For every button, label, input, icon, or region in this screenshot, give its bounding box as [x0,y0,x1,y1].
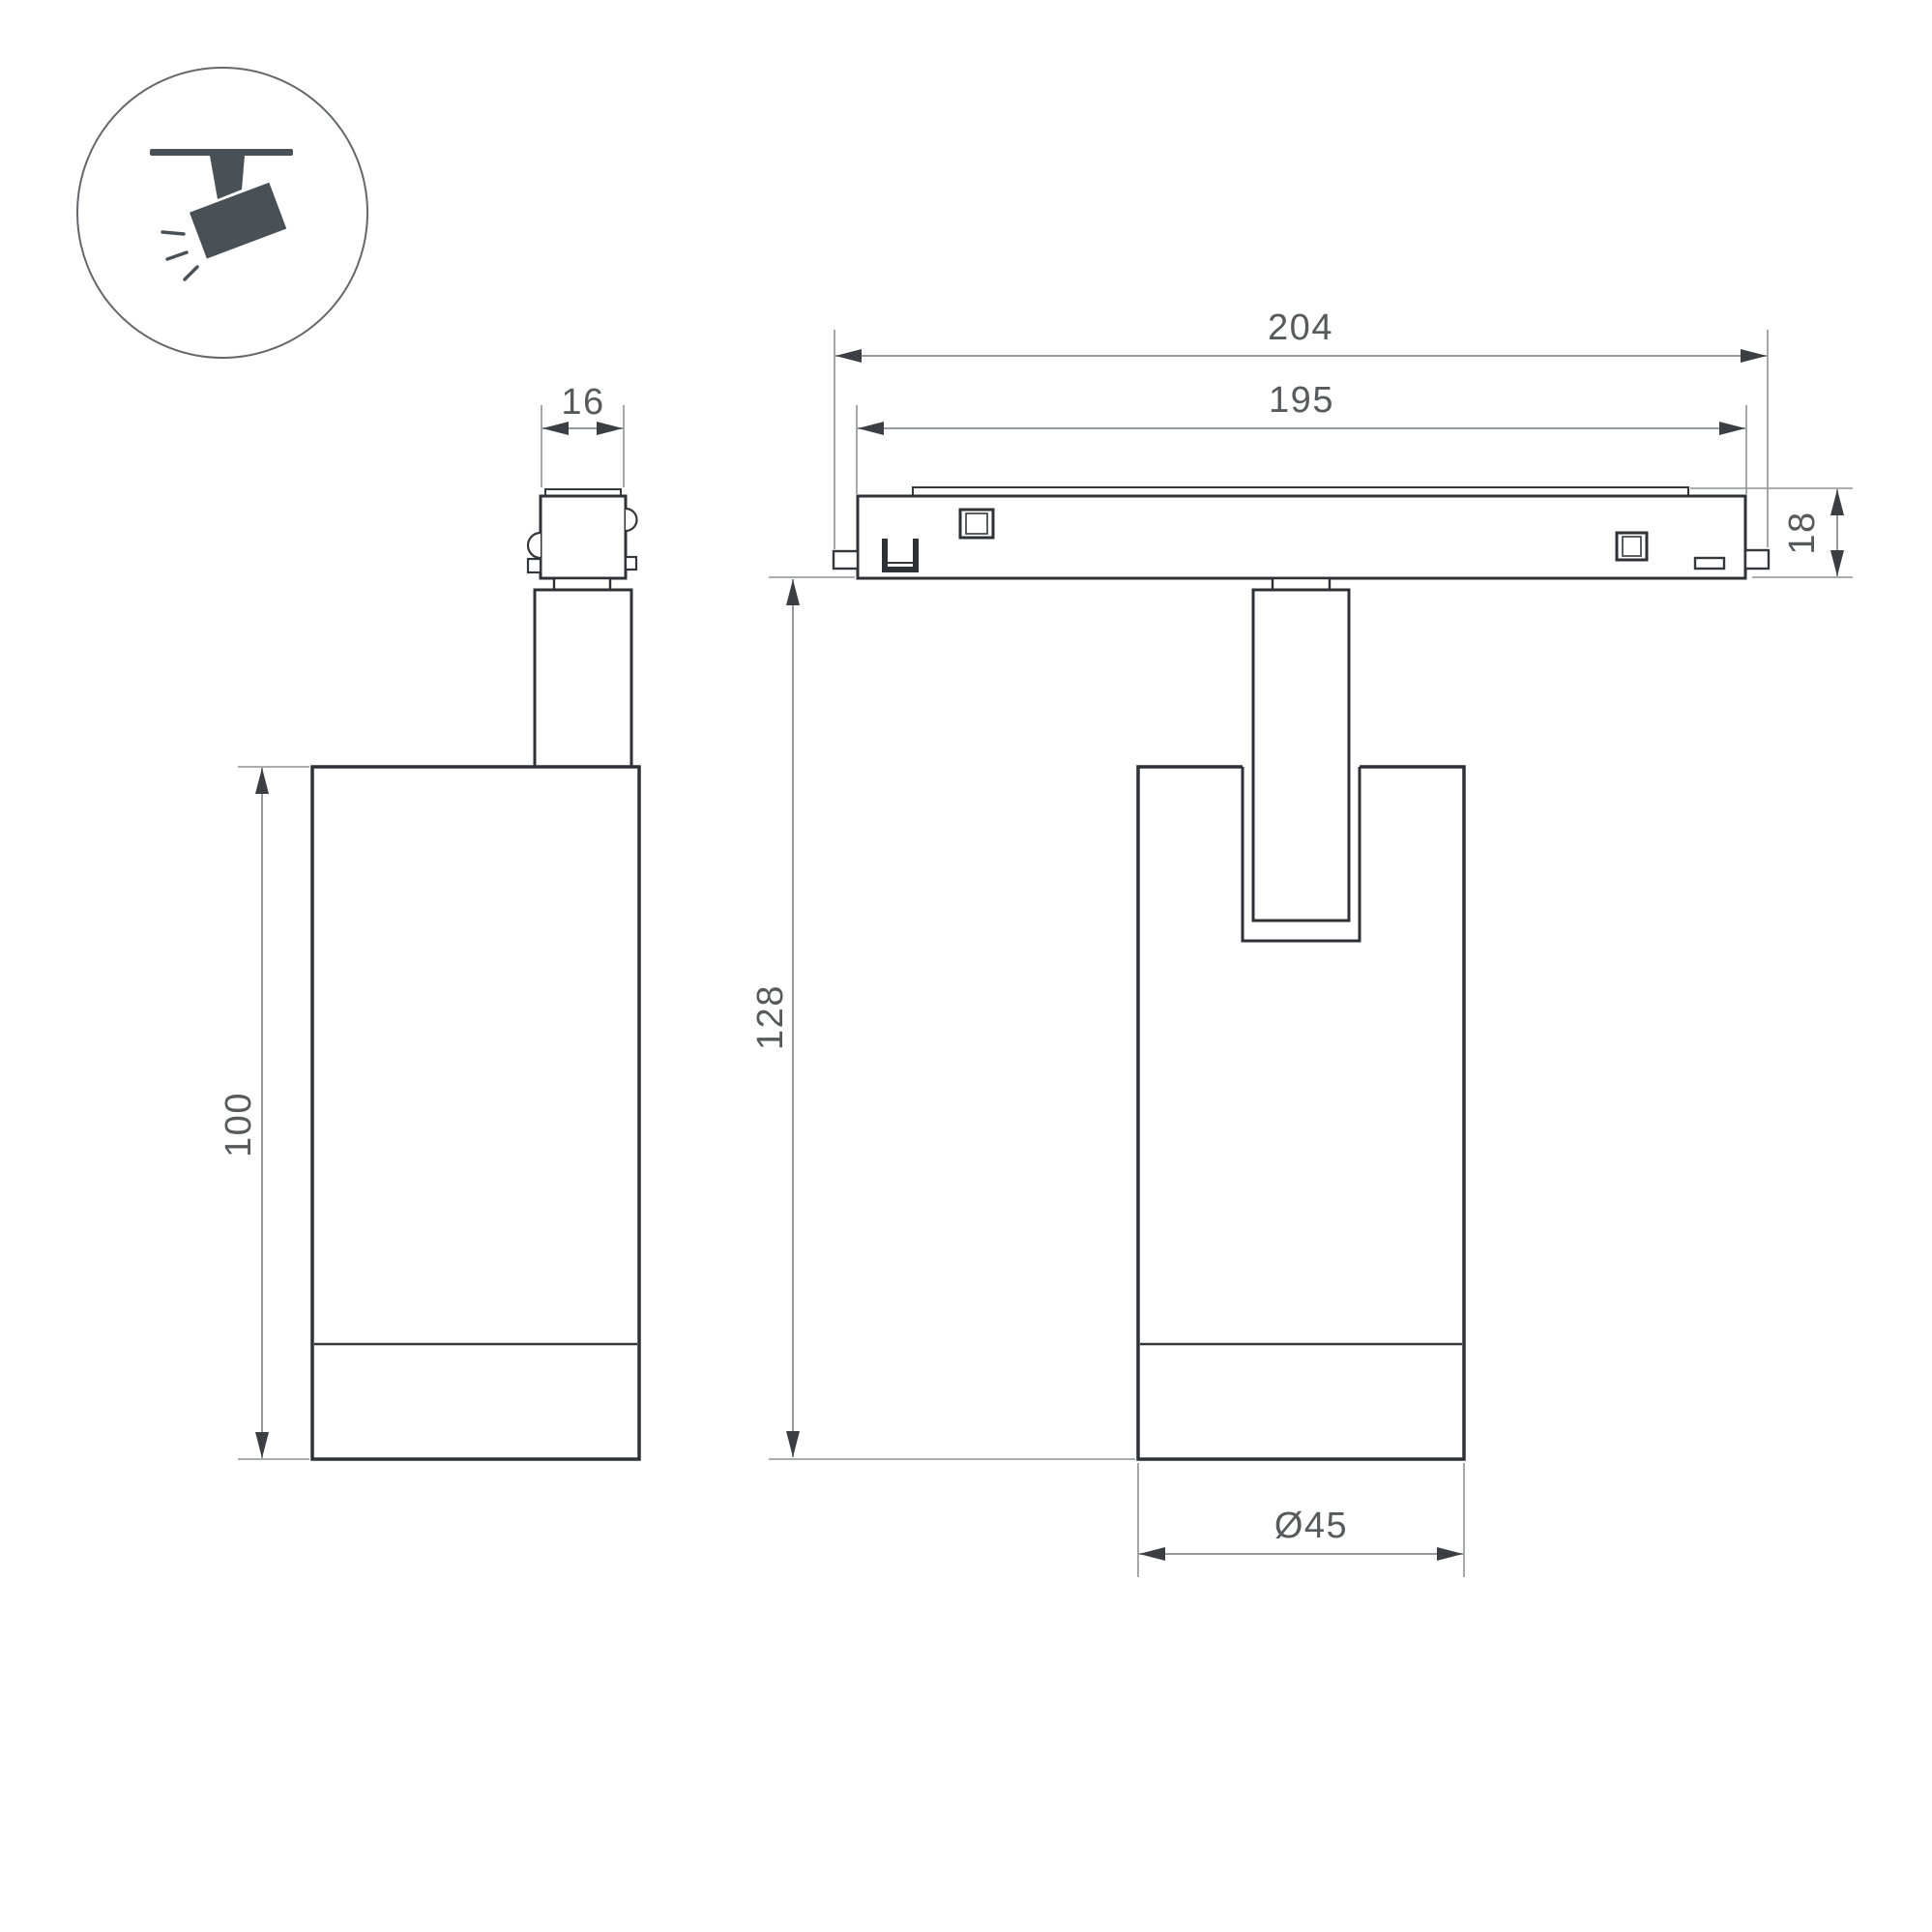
dim-adapter-width: 16 [542,382,624,487]
arrowhead [255,768,269,794]
side-adapter-block [541,496,626,578]
arrowhead [835,349,862,363]
dim-label-18: 18 [1782,511,1823,554]
side-neck [554,578,610,590]
drawing-svg: 204 195 16 [0,0,1932,1932]
side-view [312,489,639,1459]
arrowhead [1830,489,1844,515]
dim-label-16: 16 [561,382,604,423]
front-neck [1273,578,1330,590]
dim-track-length-inner: 195 [857,380,1746,494]
dim-label-45: Ø45 [1274,1506,1348,1546]
side-adapter-right-lug [626,509,637,531]
arrowhead [858,422,884,435]
arrowhead [542,422,569,435]
front-stem [1253,590,1349,921]
track-right-end-tab [1745,550,1769,569]
track-left-end-tab [834,551,858,569]
technical-drawing-canvas: 204 195 16 [0,0,1932,1932]
arrowhead [1719,422,1745,435]
arrowhead [786,579,800,605]
dim-label-128: 128 [750,984,791,1050]
side-adapter-left-lug [528,533,541,558]
arrowhead [786,1431,800,1457]
front-view [834,487,1769,1459]
arrowhead [1437,1547,1463,1561]
dim-label-100: 100 [219,1092,259,1157]
track-connector-left-inner [966,513,987,534]
side-stem [535,590,631,767]
arrowhead [1139,1547,1165,1561]
side-body [312,767,639,1459]
icon-ceiling-track-bar [150,149,293,156]
dim-label-204: 204 [1268,307,1333,348]
dim-overall-height: 128 [750,577,1135,1459]
dim-body-height: 100 [219,767,309,1459]
arrowhead [1830,550,1844,576]
arrowhead [255,1432,269,1458]
dim-body-diameter: Ø45 [1138,1463,1464,1577]
track-slot-right [1695,558,1724,569]
arrowhead [597,422,623,435]
dim-label-195: 195 [1269,380,1334,421]
side-adapter-right-tab [626,557,636,570]
track-connector-right-inner [1623,537,1641,556]
arrowhead [1741,349,1767,363]
icon-light-ray-1 [162,232,184,234]
track-spotlight-icon [77,68,367,358]
side-adapter-left-tab [528,559,541,572]
